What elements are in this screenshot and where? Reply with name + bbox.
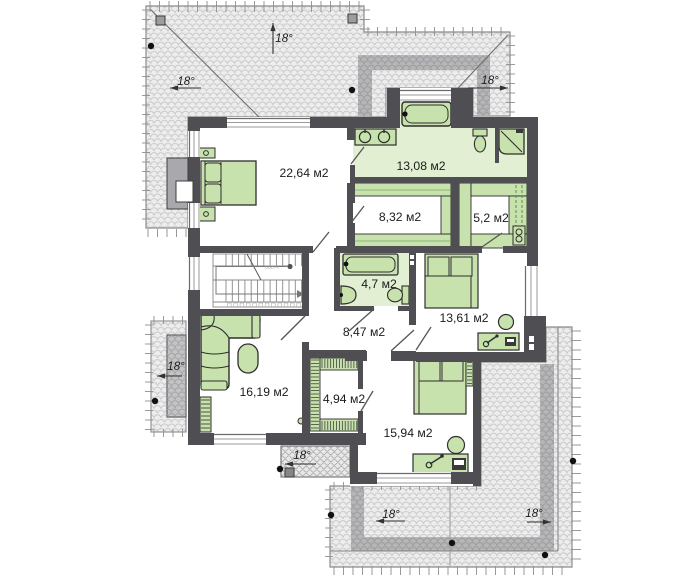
- svg-text:18°: 18°: [177, 76, 195, 88]
- svg-text:22,64 м2: 22,64 м2: [279, 166, 328, 180]
- svg-text:18°: 18°: [481, 75, 499, 87]
- svg-text:13,61 м2: 13,61 м2: [439, 311, 488, 325]
- svg-text:18°: 18°: [293, 450, 311, 462]
- svg-text:18°: 18°: [382, 509, 400, 521]
- svg-text:18°: 18°: [525, 508, 543, 520]
- svg-text:8,47 м2: 8,47 м2: [343, 325, 385, 339]
- svg-text:4,7 м2: 4,7 м2: [361, 277, 397, 291]
- svg-text:16,19 м2: 16,19 м2: [239, 385, 288, 399]
- svg-text:13,08 м2: 13,08 м2: [396, 159, 445, 173]
- svg-text:4,94 м2: 4,94 м2: [323, 392, 365, 406]
- svg-text:ВВЕРХ: ВВЕРХ: [265, 265, 279, 270]
- svg-text:15,94 м2: 15,94 м2: [383, 426, 432, 440]
- svg-text:18°: 18°: [275, 33, 293, 45]
- svg-text:18°: 18°: [167, 361, 185, 373]
- svg-text:5,2 м2: 5,2 м2: [473, 211, 509, 225]
- svg-text:8,32 м2: 8,32 м2: [379, 210, 421, 224]
